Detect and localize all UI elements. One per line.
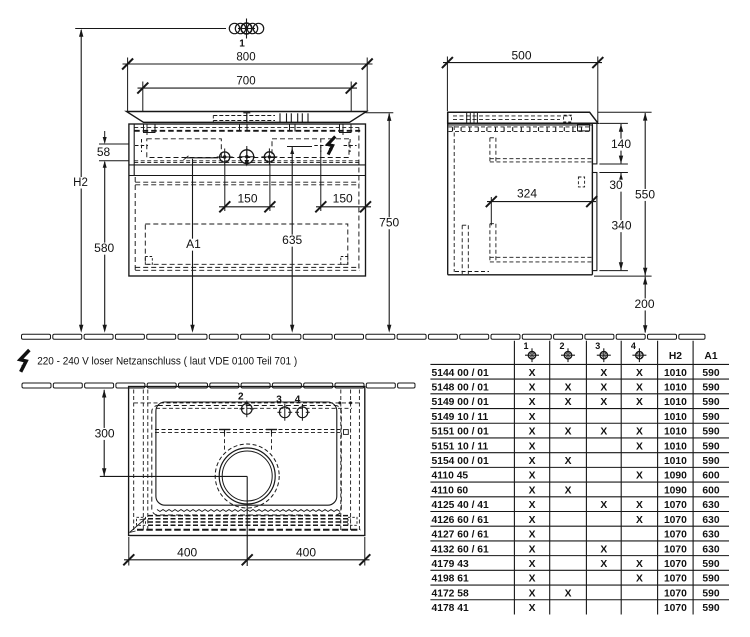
svg-text:X: X xyxy=(565,485,572,496)
svg-text:1070: 1070 xyxy=(664,515,687,526)
svg-text:X: X xyxy=(600,382,607,393)
svg-text:580: 580 xyxy=(94,241,114,255)
svg-text:4: 4 xyxy=(631,341,636,351)
svg-text:5149 00 / 01: 5149 00 / 01 xyxy=(432,397,490,408)
svg-text:590: 590 xyxy=(702,574,719,585)
svg-text:X: X xyxy=(565,427,572,438)
svg-text:630: 630 xyxy=(702,515,719,526)
svg-text:A1: A1 xyxy=(186,237,201,251)
svg-text:1070: 1070 xyxy=(664,559,687,570)
svg-text:750: 750 xyxy=(379,216,399,230)
svg-text:4127 60 / 61: 4127 60 / 61 xyxy=(432,530,490,541)
svg-text:X: X xyxy=(636,382,643,393)
svg-text:1070: 1070 xyxy=(664,603,687,614)
svg-text:X: X xyxy=(529,427,536,438)
svg-text:150: 150 xyxy=(237,191,257,205)
svg-text:630: 630 xyxy=(702,530,719,541)
svg-text:X: X xyxy=(636,559,643,570)
svg-text:630: 630 xyxy=(702,500,719,511)
svg-text:X: X xyxy=(529,515,536,526)
svg-text:700: 700 xyxy=(236,76,255,88)
svg-text:X: X xyxy=(636,574,643,585)
svg-text:1010: 1010 xyxy=(664,456,687,467)
svg-text:324: 324 xyxy=(517,187,537,201)
svg-text:1010: 1010 xyxy=(664,441,687,452)
svg-text:2: 2 xyxy=(238,392,244,403)
svg-text:X: X xyxy=(636,441,643,452)
svg-text:X: X xyxy=(529,456,536,467)
svg-text:X: X xyxy=(600,427,607,438)
svg-text:X: X xyxy=(565,588,572,599)
svg-text:5154 00 / 01: 5154 00 / 01 xyxy=(432,456,490,467)
svg-text:200: 200 xyxy=(634,297,654,311)
svg-text:600: 600 xyxy=(702,485,719,496)
svg-text:X: X xyxy=(600,500,607,511)
svg-text:X: X xyxy=(600,397,607,408)
svg-text:1010: 1010 xyxy=(664,412,687,423)
svg-text:X: X xyxy=(529,544,536,555)
svg-text:630: 630 xyxy=(702,544,719,555)
svg-text:X: X xyxy=(600,559,607,570)
svg-text:4125 40 / 41: 4125 40 / 41 xyxy=(432,500,490,511)
svg-text:4198 61: 4198 61 xyxy=(432,574,469,585)
svg-text:H2: H2 xyxy=(669,351,682,362)
svg-text:5144 00 / 01: 5144 00 / 01 xyxy=(432,368,490,379)
svg-text:5151 10 / 11: 5151 10 / 11 xyxy=(432,441,489,452)
svg-text:X: X xyxy=(636,471,643,482)
svg-text:A1: A1 xyxy=(704,351,717,362)
svg-text:590: 590 xyxy=(702,603,719,614)
svg-text:590: 590 xyxy=(702,412,719,423)
svg-text:500: 500 xyxy=(511,48,531,62)
svg-text:590: 590 xyxy=(702,397,719,408)
svg-text:600: 600 xyxy=(702,471,719,482)
svg-text:590: 590 xyxy=(702,588,719,599)
svg-text:5149 10 / 11: 5149 10 / 11 xyxy=(432,412,489,423)
svg-text:5148 00 / 01: 5148 00 / 01 xyxy=(432,382,490,393)
svg-text:X: X xyxy=(529,471,536,482)
svg-text:150: 150 xyxy=(333,191,353,205)
svg-text:X: X xyxy=(600,368,607,379)
svg-text:X: X xyxy=(529,574,536,585)
svg-text:1070: 1070 xyxy=(664,574,687,585)
svg-text:400: 400 xyxy=(177,546,197,560)
svg-text:X: X xyxy=(529,530,536,541)
svg-text:590: 590 xyxy=(702,427,719,438)
svg-text:X: X xyxy=(565,456,572,467)
svg-text:1010: 1010 xyxy=(664,397,687,408)
svg-text:590: 590 xyxy=(702,559,719,570)
svg-text:X: X xyxy=(636,368,643,379)
svg-text:340: 340 xyxy=(611,219,631,233)
svg-text:1010: 1010 xyxy=(664,427,687,438)
svg-text:2: 2 xyxy=(559,341,564,351)
svg-text:X: X xyxy=(636,397,643,408)
svg-text:400: 400 xyxy=(296,546,316,560)
svg-text:220 - 240 V loser Netzanschlus: 220 - 240 V loser Netzanschluss ( laut V… xyxy=(37,356,297,368)
svg-text:X: X xyxy=(529,382,536,393)
svg-text:X: X xyxy=(529,603,536,614)
svg-text:1: 1 xyxy=(523,341,528,351)
svg-text:X: X xyxy=(529,412,536,423)
svg-text:1090: 1090 xyxy=(664,485,687,496)
svg-text:X: X xyxy=(600,544,607,555)
svg-text:X: X xyxy=(636,515,643,526)
svg-text:X: X xyxy=(565,397,572,408)
svg-text:590: 590 xyxy=(702,368,719,379)
svg-text:5151 00 / 01: 5151 00 / 01 xyxy=(432,427,490,438)
svg-text:1070: 1070 xyxy=(664,544,687,555)
svg-text:4: 4 xyxy=(295,395,301,406)
svg-text:800: 800 xyxy=(236,52,255,64)
svg-text:X: X xyxy=(529,441,536,452)
svg-text:30: 30 xyxy=(609,178,623,192)
svg-text:1070: 1070 xyxy=(664,530,687,541)
svg-text:140: 140 xyxy=(611,137,631,151)
svg-text:4172 58: 4172 58 xyxy=(432,588,469,599)
svg-text:X: X xyxy=(529,588,536,599)
svg-text:1070: 1070 xyxy=(664,500,687,511)
svg-text:4110 60: 4110 60 xyxy=(432,485,469,496)
svg-text:300: 300 xyxy=(95,426,115,440)
svg-text:X: X xyxy=(529,368,536,379)
svg-text:3: 3 xyxy=(595,341,600,351)
svg-text:58: 58 xyxy=(97,145,111,159)
svg-text:1010: 1010 xyxy=(664,382,687,393)
svg-text:550: 550 xyxy=(635,187,655,201)
svg-text:X: X xyxy=(636,427,643,438)
svg-text:X: X xyxy=(636,500,643,511)
svg-text:1090: 1090 xyxy=(664,471,687,482)
svg-text:1010: 1010 xyxy=(664,368,687,379)
svg-text:X: X xyxy=(529,500,536,511)
svg-text:590: 590 xyxy=(702,382,719,393)
svg-text:4126 60 / 61: 4126 60 / 61 xyxy=(432,515,490,526)
svg-text:590: 590 xyxy=(702,441,719,452)
svg-text:4110 45: 4110 45 xyxy=(432,471,469,482)
svg-text:1: 1 xyxy=(239,39,245,50)
svg-text:3: 3 xyxy=(276,395,282,406)
svg-text:4132 60 / 61: 4132 60 / 61 xyxy=(432,544,490,555)
svg-text:X: X xyxy=(529,397,536,408)
svg-text:X: X xyxy=(529,485,536,496)
svg-text:590: 590 xyxy=(702,456,719,467)
svg-text:X: X xyxy=(529,559,536,570)
svg-text:X: X xyxy=(565,382,572,393)
svg-text:H2: H2 xyxy=(73,177,88,189)
svg-text:1070: 1070 xyxy=(664,588,687,599)
svg-text:4178 41: 4178 41 xyxy=(432,603,469,614)
svg-text:635: 635 xyxy=(282,233,302,247)
svg-text:4179 43: 4179 43 xyxy=(432,559,469,570)
